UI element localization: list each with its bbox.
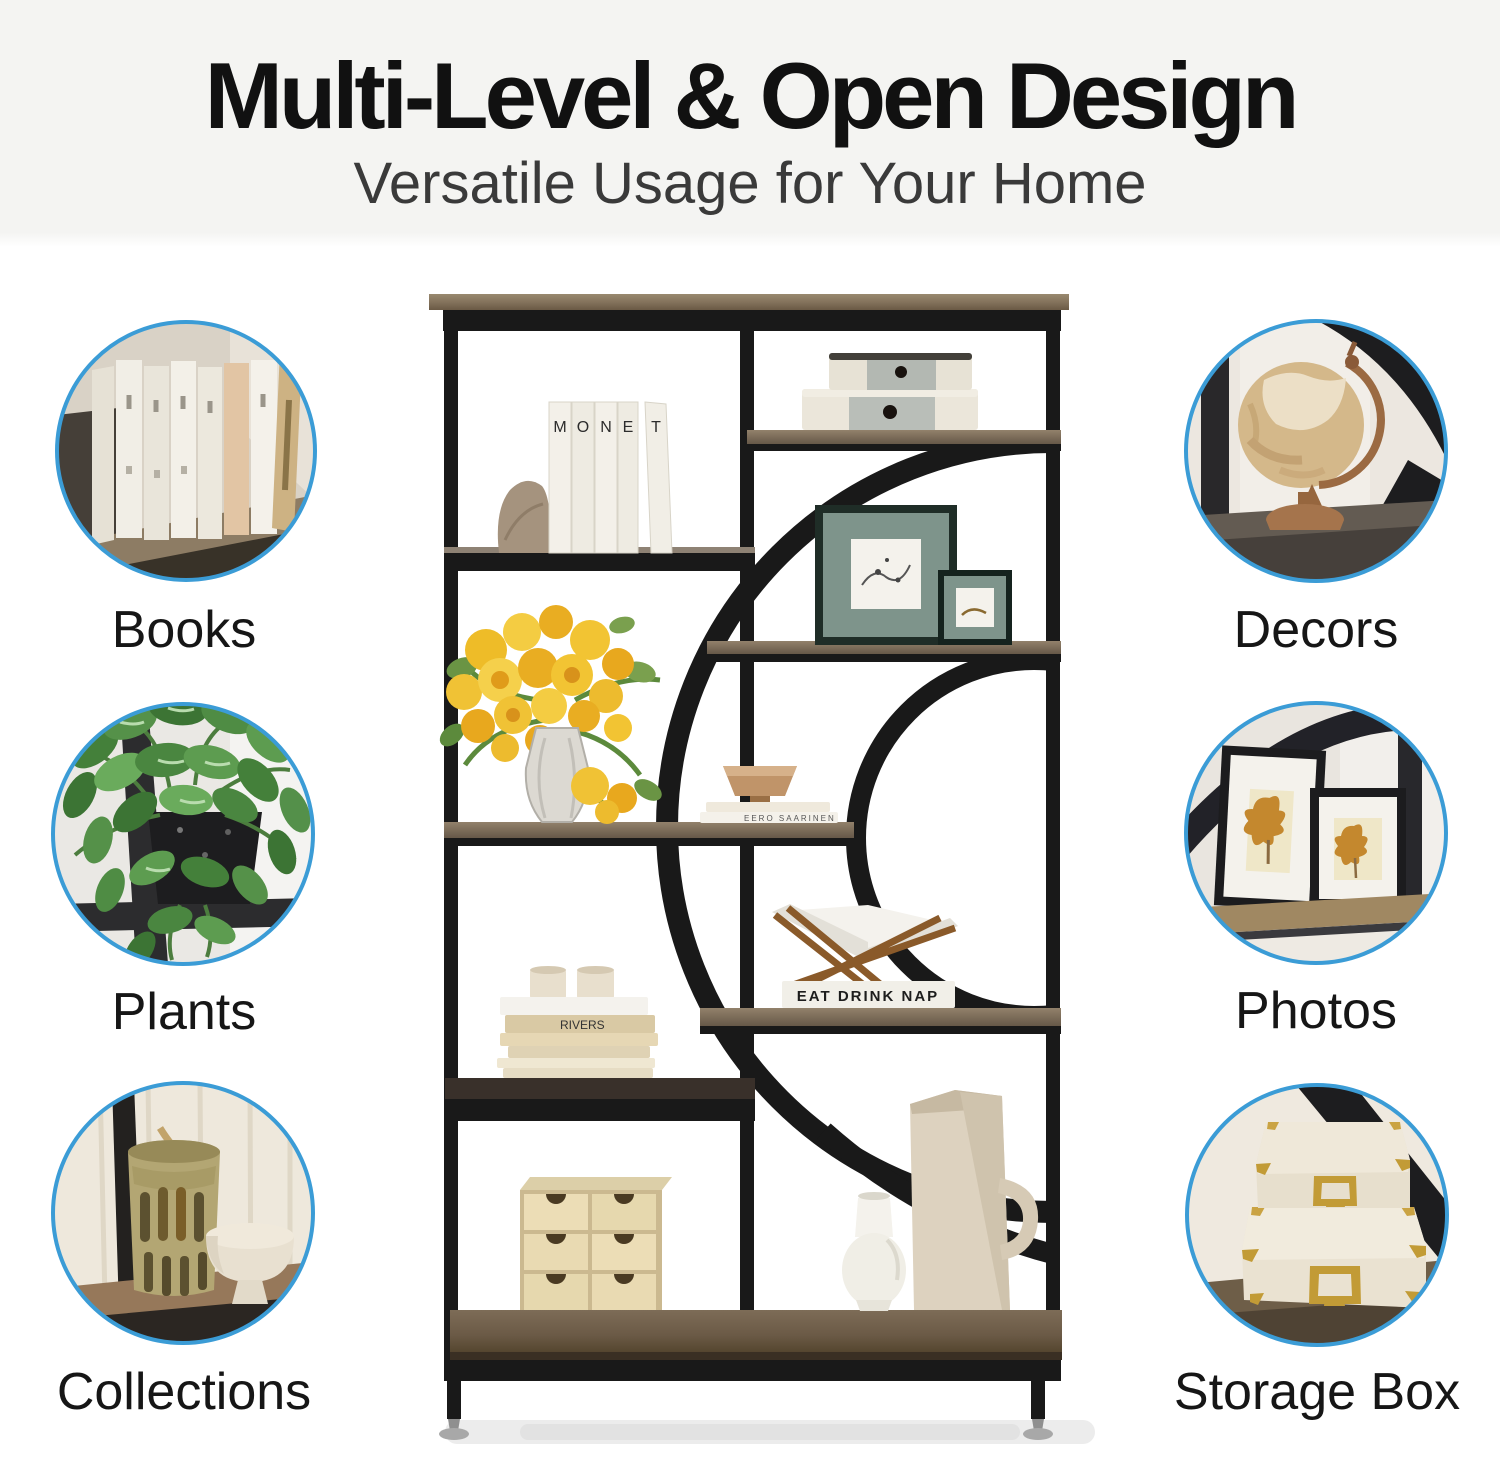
- svg-text:Collections: Collections: [57, 1363, 311, 1421]
- svg-text:O: O: [577, 419, 589, 436]
- svg-text:E: E: [623, 419, 634, 436]
- svg-text:Multi-Level & Open Design: Multi-Level & Open Design: [205, 43, 1296, 148]
- svg-text:Photos: Photos: [1235, 982, 1397, 1040]
- svg-text:Plants: Plants: [112, 983, 257, 1041]
- svg-text:Books: Books: [112, 601, 257, 659]
- svg-text:EAT DRINK NAP: EAT DRINK NAP: [797, 988, 939, 1005]
- svg-text:Decors: Decors: [1234, 601, 1399, 659]
- svg-text:RIVERS: RIVERS: [560, 1018, 605, 1032]
- svg-text:T: T: [651, 419, 661, 436]
- svg-text:Storage Box: Storage Box: [1174, 1363, 1460, 1421]
- svg-text:Versatile Usage for Your Home: Versatile Usage for Your Home: [353, 151, 1146, 216]
- svg-text:N: N: [600, 419, 612, 436]
- svg-text:M: M: [553, 419, 566, 436]
- svg-text:EERO SAARINEN: EERO SAARINEN: [744, 814, 836, 823]
